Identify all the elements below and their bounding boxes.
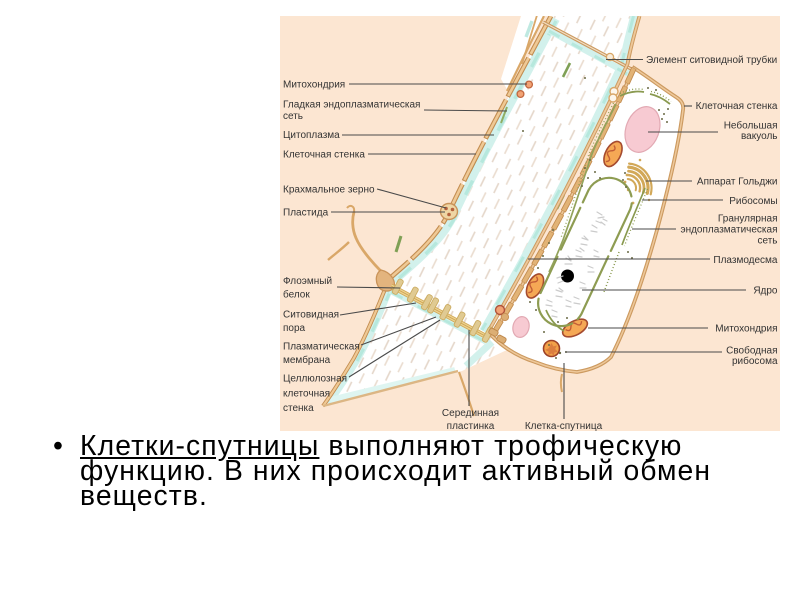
svg-text:сеть: сеть bbox=[757, 236, 777, 247]
svg-text:Крахмальное зерно: Крахмальное зерно bbox=[283, 185, 375, 196]
svg-text:стенка: стенка bbox=[283, 403, 314, 414]
svg-text:Гладкая эндоплазматическая: Гладкая эндоплазматическая bbox=[283, 100, 420, 111]
svg-text:Ядро: Ядро bbox=[753, 286, 778, 297]
svg-text:пора: пора bbox=[283, 323, 306, 334]
svg-text:Плазматическая: Плазматическая bbox=[283, 342, 360, 353]
svg-text:мембрана: мембрана bbox=[283, 354, 331, 366]
svg-text:эндоплазматическая: эндоплазматическая bbox=[680, 225, 777, 236]
svg-text:Клеточная стенка: Клеточная стенка bbox=[696, 101, 778, 112]
svg-text:Небольшая: Небольшая bbox=[724, 120, 778, 132]
svg-text:белок: белок bbox=[283, 289, 310, 301]
svg-text:Элемент ситовидной трубки: Элемент ситовидной трубки bbox=[646, 54, 777, 66]
svg-text:сеть: сеть bbox=[283, 111, 303, 122]
svg-text:Плазмодесма: Плазмодесма bbox=[713, 255, 778, 266]
svg-text:клеточная: клеточная bbox=[283, 389, 330, 400]
svg-text:Рибосомы: Рибосомы bbox=[729, 195, 777, 207]
svg-text:вакуоль: вакуоль bbox=[741, 131, 778, 142]
svg-text:Митохондрия: Митохондрия bbox=[715, 324, 777, 335]
svg-text:Аппарат Гольджи: Аппарат Гольджи bbox=[697, 177, 778, 188]
svg-text:Митохондрия: Митохондрия bbox=[283, 80, 345, 91]
svg-text:Цитоплазма: Цитоплазма bbox=[283, 130, 340, 141]
svg-text:Пластида: Пластида bbox=[283, 208, 329, 219]
svg-text:Ситовидная: Ситовидная bbox=[283, 310, 339, 321]
svg-text:Флоэмный: Флоэмный bbox=[283, 276, 332, 287]
svg-text:рибосома: рибосома bbox=[732, 355, 778, 367]
svg-text:Гранулярная: Гранулярная bbox=[718, 214, 778, 225]
svg-text:Целлюлозная: Целлюлозная bbox=[283, 374, 347, 385]
svg-text:Свободная: Свободная bbox=[726, 345, 777, 357]
svg-text:Серединная: Серединная bbox=[442, 408, 499, 419]
svg-text:Клеточная стенка: Клеточная стенка bbox=[283, 150, 365, 161]
